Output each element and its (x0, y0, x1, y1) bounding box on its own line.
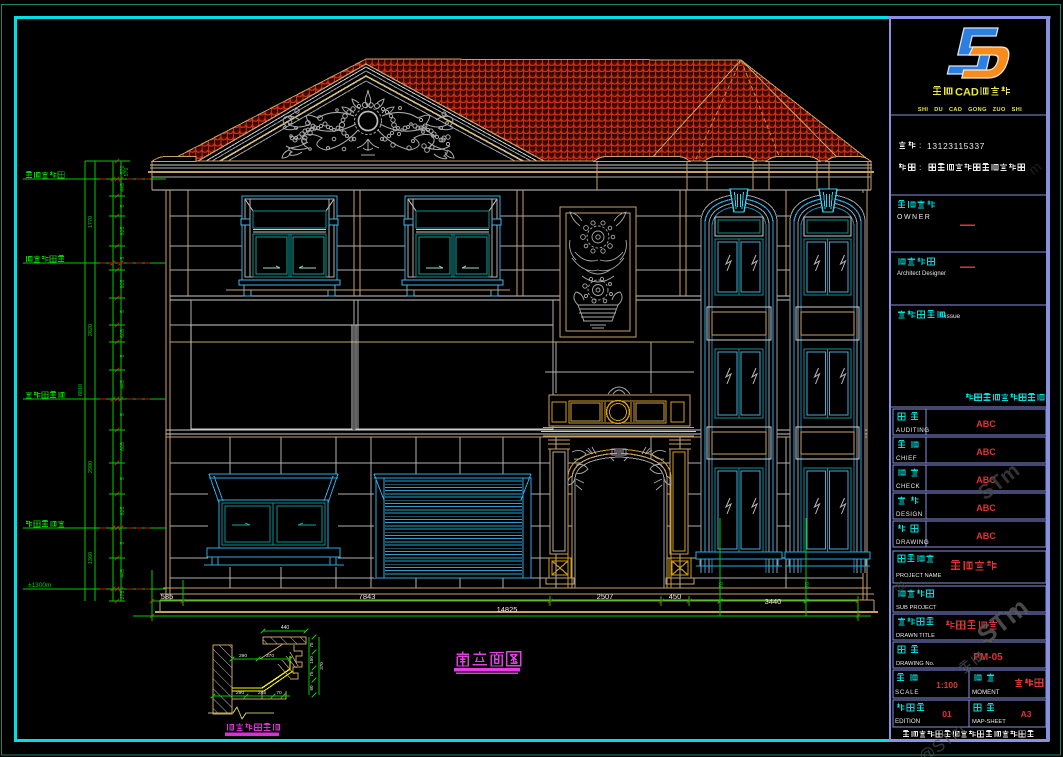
svg-text:MAP-SHEET: MAP-SHEET (972, 719, 1006, 725)
svg-text:ABC: ABC (976, 531, 996, 541)
svg-text:1:100: 1:100 (936, 680, 958, 690)
svg-text:CAD: CAD (955, 87, 979, 99)
svg-text:SCALE: SCALE (895, 689, 919, 696)
svg-text:±1300m: ±1300m (28, 582, 51, 589)
svg-text:5: 5 (120, 204, 126, 207)
svg-text:MOMENT: MOMENT (972, 689, 1000, 696)
svg-text:445: 445 (120, 380, 126, 389)
svg-text:440: 440 (281, 625, 290, 631)
svg-text:issue: issue (945, 313, 961, 320)
svg-text:1360: 1360 (88, 552, 94, 564)
svg-text:290: 290 (239, 653, 247, 659)
svg-text:DRAWING: DRAWING (896, 539, 929, 546)
svg-text:01: 01 (942, 709, 952, 719)
svg-text:SHI DU CAD GONG ZUO: SHI DU CAD GONG ZUO SHI (918, 107, 1022, 113)
svg-text:DRAWN TITLE: DRAWN TITLE (896, 633, 935, 639)
svg-text:3440: 3440 (765, 597, 782, 606)
svg-text:5: 5 (120, 354, 126, 357)
svg-text:605: 605 (120, 280, 126, 289)
svg-text::: : (919, 140, 921, 150)
svg-text:445: 445 (120, 183, 126, 192)
svg-text:5: 5 (120, 413, 126, 416)
svg-text:2900: 2900 (88, 461, 94, 473)
svg-text:ABC: ABC (976, 447, 996, 457)
svg-text:14825: 14825 (497, 605, 518, 614)
svg-text:75: 75 (309, 671, 314, 677)
svg-text:5: 5 (120, 541, 126, 544)
svg-text:445: 445 (120, 569, 126, 578)
svg-text:A3: A3 (1021, 709, 1032, 719)
svg-text:2507: 2507 (597, 592, 614, 601)
svg-text:570: 570 (124, 168, 130, 177)
svg-text:70: 70 (805, 582, 811, 588)
svg-text:5: 5 (120, 477, 126, 480)
svg-text:275: 275 (120, 591, 126, 600)
svg-text:585: 585 (161, 592, 174, 601)
svg-text:370: 370 (266, 653, 274, 659)
svg-text:EDITION: EDITION (895, 718, 920, 725)
svg-text:70: 70 (719, 582, 725, 588)
svg-text:7843: 7843 (359, 592, 376, 601)
svg-text:150: 150 (309, 656, 314, 664)
svg-text:5: 5 (120, 256, 126, 259)
svg-text:75: 75 (309, 642, 314, 648)
svg-text:8810: 8810 (78, 384, 84, 396)
svg-text:Architect Designer: Architect Designer (897, 271, 946, 277)
svg-text:SUB PROJECT: SUB PROJECT (896, 605, 937, 611)
svg-text:605: 605 (120, 507, 126, 516)
svg-text::: : (919, 162, 921, 172)
svg-text:70: 70 (276, 690, 282, 696)
svg-text:605: 605 (120, 227, 126, 236)
svg-text:1770: 1770 (88, 216, 94, 228)
svg-text:AUDITING: AUDITING (896, 427, 930, 434)
svg-text:2820: 2820 (88, 324, 94, 336)
svg-text:DESIGN: DESIGN (896, 511, 923, 518)
svg-text:ABC: ABC (976, 419, 996, 429)
svg-text:605: 605 (120, 442, 126, 451)
svg-text:OWNER: OWNER (897, 214, 931, 221)
svg-text:CHECK: CHECK (896, 483, 921, 490)
svg-text:370: 370 (319, 662, 324, 670)
svg-text:605: 605 (120, 329, 126, 338)
svg-text:PROJECT NAME: PROJECT NAME (896, 573, 941, 579)
svg-text:ABC: ABC (976, 503, 996, 513)
svg-text:DRAWING No.: DRAWING No. (896, 661, 935, 667)
svg-text:245: 245 (258, 690, 266, 696)
svg-text:290: 290 (236, 690, 244, 696)
svg-text:5: 5 (120, 310, 126, 313)
svg-text:60: 60 (309, 685, 314, 691)
svg-text:CHIEF: CHIEF (896, 455, 917, 462)
svg-text:450: 450 (669, 592, 682, 601)
svg-text:13123115337: 13123115337 (927, 141, 985, 151)
